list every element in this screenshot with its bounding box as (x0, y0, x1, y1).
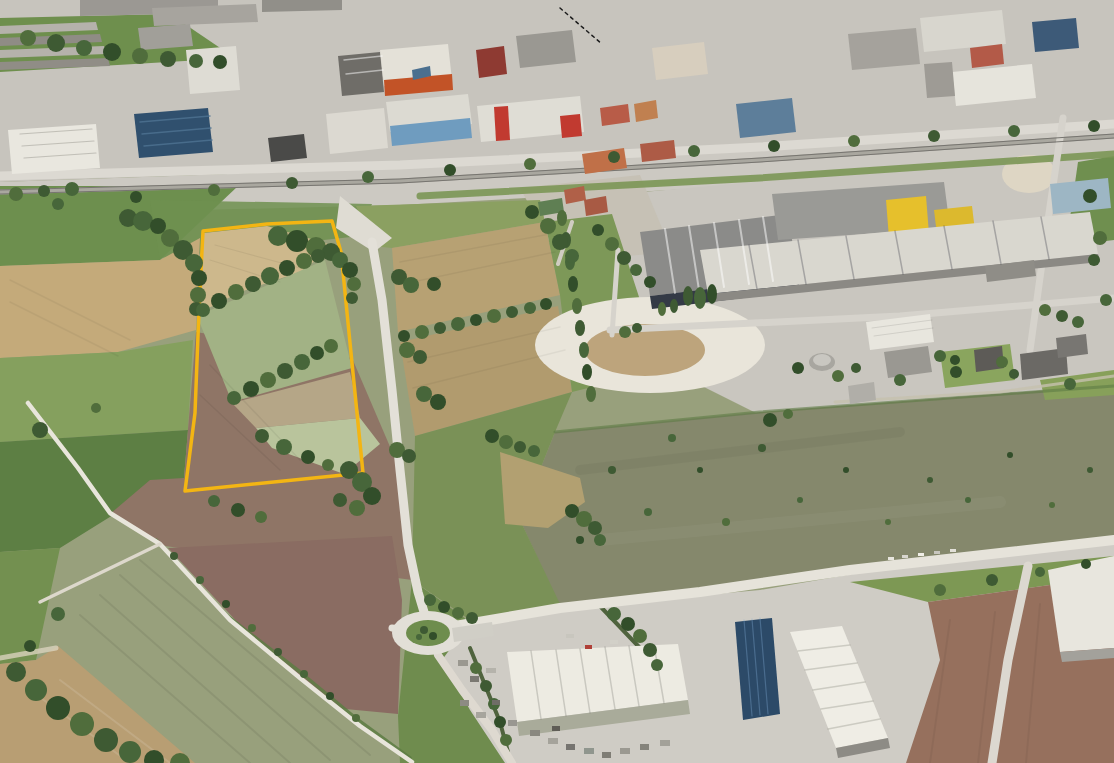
clutter-12 (530, 730, 540, 736)
trees-74 (438, 601, 450, 613)
trees-147 (619, 326, 631, 338)
trees-180 (1087, 467, 1093, 473)
trees-138 (525, 205, 539, 219)
trees-142 (592, 224, 604, 236)
trees-115 (208, 184, 220, 196)
trees-167 (783, 409, 793, 419)
trees-46 (24, 640, 36, 652)
trees-70 (430, 394, 446, 410)
trees-91 (415, 325, 429, 339)
trees-110 (707, 284, 717, 304)
trees-144 (617, 251, 631, 265)
trees-163 (996, 356, 1008, 368)
trees-41 (208, 495, 220, 507)
trees-44 (32, 422, 48, 438)
trees-17 (196, 303, 210, 317)
trees-182 (576, 536, 584, 544)
trees-177 (965, 497, 971, 503)
trees-158 (792, 362, 804, 374)
trees-2 (150, 218, 166, 234)
trees-145 (630, 264, 642, 276)
trees-141 (565, 249, 579, 263)
trees-105 (579, 342, 589, 358)
trees-95 (487, 309, 501, 323)
trees-69 (416, 386, 432, 402)
clutter-17 (620, 748, 630, 754)
trees-155 (1093, 231, 1107, 245)
trees-20 (245, 276, 261, 292)
trees-139 (540, 218, 556, 234)
trees-119 (524, 158, 536, 170)
trees-116 (286, 177, 298, 189)
trees-65 (403, 277, 419, 293)
trees-98 (540, 298, 552, 310)
trees-24 (311, 249, 325, 263)
trees-1 (133, 211, 153, 231)
trees-35 (322, 459, 334, 471)
car (888, 557, 894, 560)
trees-75 (452, 607, 464, 619)
trees-10 (286, 230, 308, 252)
clutter-8 (460, 700, 469, 706)
trees-112 (670, 299, 678, 313)
trees-56 (170, 552, 178, 560)
trees-191 (500, 734, 512, 746)
clutter-14 (566, 744, 575, 750)
trees-122 (768, 140, 780, 152)
trees-157 (1100, 294, 1112, 306)
clutter-5 (458, 660, 468, 666)
clutter-21 (585, 645, 592, 649)
buildings-2 (262, 0, 342, 12)
trees-50 (46, 696, 70, 720)
trees-6 (191, 270, 207, 286)
trees-160 (851, 363, 861, 373)
trees-166 (763, 413, 777, 427)
buildings-20 (268, 134, 307, 162)
trees-62 (326, 692, 334, 700)
buildings-19 (326, 108, 388, 154)
trees-99 (557, 210, 567, 226)
buildings-22 (494, 106, 510, 141)
trees-51 (70, 712, 94, 736)
trees-82 (485, 429, 499, 443)
trees-183 (934, 584, 946, 596)
buildings-9 (186, 46, 240, 94)
trees-175 (885, 519, 891, 525)
trees-59 (248, 624, 256, 632)
trees-31 (324, 339, 338, 353)
trees-188 (480, 680, 492, 692)
trees-43 (255, 511, 267, 523)
trees-83 (499, 435, 513, 449)
car (934, 551, 940, 554)
trees-47 (91, 403, 101, 413)
trees-85 (528, 445, 540, 457)
buildings-10 (138, 24, 193, 50)
building-blue-glass (736, 98, 796, 138)
trees-153 (1072, 316, 1084, 328)
trees-172 (758, 444, 766, 452)
trees-171 (722, 518, 730, 526)
trees-161 (894, 374, 906, 386)
trees-123 (848, 135, 860, 147)
clutter-11 (508, 720, 517, 726)
trees-176 (927, 477, 933, 483)
clutter-7 (486, 668, 496, 673)
roundabout-4 (416, 634, 422, 640)
clutter-18 (640, 744, 649, 750)
trees-48 (6, 662, 26, 682)
trees-52 (94, 728, 118, 752)
trees-134 (213, 55, 227, 69)
trees-186 (1081, 559, 1091, 569)
clutter-16 (602, 752, 611, 758)
trees-28 (277, 363, 293, 379)
trees-34 (301, 450, 315, 464)
trees-129 (76, 40, 92, 56)
trees-45 (51, 607, 65, 621)
trees-79 (633, 629, 647, 643)
trees-146 (644, 276, 656, 288)
trees-126 (1088, 120, 1100, 132)
house-red-roof (970, 44, 1004, 68)
trees-96 (506, 306, 518, 318)
silo-tank-top (813, 354, 831, 366)
trees-33 (276, 439, 292, 455)
trees-77 (607, 607, 621, 621)
trees-184 (986, 574, 998, 586)
trees-120 (608, 151, 620, 163)
clutter-15 (584, 748, 594, 754)
trees-94 (470, 314, 482, 326)
building-arched-cream (652, 42, 708, 80)
trees-18 (211, 293, 227, 309)
roundabout-3 (429, 632, 437, 640)
trees-84 (514, 441, 526, 453)
trees-132 (160, 51, 176, 67)
trees-178 (1007, 452, 1013, 458)
trees-30 (310, 346, 324, 360)
trees-135 (9, 187, 23, 201)
buildings-53 (1056, 334, 1088, 358)
trees-73 (424, 594, 436, 606)
trees-130 (103, 43, 121, 61)
clutter-13 (548, 738, 558, 744)
trees-125 (1008, 125, 1020, 137)
building-light-blue (1050, 178, 1111, 214)
trees-169 (644, 508, 652, 516)
trees-137 (65, 182, 79, 196)
trees-179 (1049, 502, 1055, 508)
trees-162 (950, 366, 962, 378)
trees-90 (398, 330, 410, 342)
buildings-17 (476, 46, 507, 78)
trees-143 (605, 237, 619, 251)
aerial-3d-view[interactable] (0, 0, 1114, 763)
trees-40 (333, 493, 347, 507)
trees-39 (349, 500, 365, 516)
building-white-far-right (1048, 556, 1114, 652)
trees-63 (352, 714, 360, 722)
trees-102 (568, 276, 578, 292)
trees-113 (52, 198, 64, 210)
trees-159 (832, 370, 844, 382)
car (918, 553, 924, 556)
trees-26 (243, 381, 259, 397)
trees-14 (342, 262, 358, 278)
trees-152 (1056, 310, 1068, 322)
trees-15 (347, 277, 361, 291)
trees-7 (190, 287, 206, 303)
trees-29 (294, 354, 310, 370)
clutter-23 (610, 640, 618, 644)
car (902, 555, 908, 558)
trees-173 (797, 497, 803, 503)
trees-53 (119, 741, 141, 763)
trees-57 (196, 576, 204, 584)
trees-16 (346, 292, 358, 304)
trees-78 (621, 617, 635, 631)
buildings-31 (924, 62, 955, 98)
trees-67 (399, 342, 415, 358)
clutter-6 (470, 676, 479, 682)
trees-136 (38, 185, 50, 197)
clutter-10 (492, 700, 500, 705)
trees-168 (608, 466, 616, 474)
trees-114 (130, 191, 142, 203)
trees-164 (1009, 369, 1019, 379)
trees-127 (20, 30, 36, 46)
trees-23 (296, 253, 312, 269)
buildings-23 (560, 114, 582, 138)
trees-149 (934, 350, 946, 362)
trees-187 (470, 662, 482, 674)
trees-58 (222, 600, 230, 608)
trees-185 (1035, 567, 1045, 577)
trees-107 (586, 386, 596, 402)
trees-89 (594, 534, 606, 546)
trees-81 (651, 659, 663, 671)
roundabout-island (406, 620, 450, 646)
trees-103 (572, 298, 582, 314)
trees-42 (231, 503, 245, 517)
clutter-19 (660, 740, 670, 746)
trees-19 (228, 284, 244, 300)
buildings-28 (1032, 18, 1079, 52)
buildings-26 (848, 28, 920, 70)
trees-32 (255, 429, 269, 443)
trees-148 (632, 323, 642, 333)
trees-111 (658, 302, 666, 316)
trees-97 (524, 302, 536, 314)
trees-38 (363, 487, 381, 505)
trees-154 (1083, 189, 1097, 203)
roundabout-2 (420, 626, 428, 634)
trees-124 (928, 130, 940, 142)
trees-21 (261, 267, 279, 285)
trees-68 (413, 350, 427, 364)
trees-118 (444, 164, 456, 176)
trees-150 (950, 355, 960, 365)
trees-88 (588, 521, 602, 535)
trees-66 (427, 277, 441, 291)
trees-93 (451, 317, 465, 331)
trees-5 (185, 254, 203, 272)
trees-190 (494, 716, 506, 728)
trees-128 (47, 34, 65, 52)
trees-181 (668, 434, 676, 442)
trees-121 (688, 145, 700, 157)
trees-117 (362, 171, 374, 183)
clutter-20 (552, 726, 560, 731)
aerial-imagery-canvas[interactable] (0, 0, 1114, 763)
trees-25 (227, 391, 241, 405)
clutter-22 (566, 634, 574, 638)
buildings-18 (516, 30, 576, 68)
trees-92 (434, 322, 446, 334)
trees-133 (189, 54, 203, 68)
trees-22 (279, 260, 295, 276)
trees-174 (843, 467, 849, 473)
trees-165 (1064, 378, 1076, 390)
trees-60 (274, 648, 282, 656)
trees-72 (402, 449, 416, 463)
trees-151 (1039, 304, 1051, 316)
trees-76 (466, 612, 478, 624)
trees-109 (694, 287, 706, 309)
trees-131 (132, 48, 148, 64)
trees-27 (260, 372, 276, 388)
trees-106 (582, 364, 592, 380)
trees-49 (25, 679, 47, 701)
trees-9 (268, 226, 288, 246)
trees-104 (575, 320, 585, 336)
trees-61 (300, 670, 308, 678)
car (950, 549, 956, 552)
trees-170 (697, 467, 703, 473)
trees-140 (552, 234, 568, 250)
clutter-9 (476, 712, 486, 718)
trees-80 (643, 643, 657, 657)
trees-108 (683, 286, 693, 306)
trees-156 (1088, 254, 1100, 266)
